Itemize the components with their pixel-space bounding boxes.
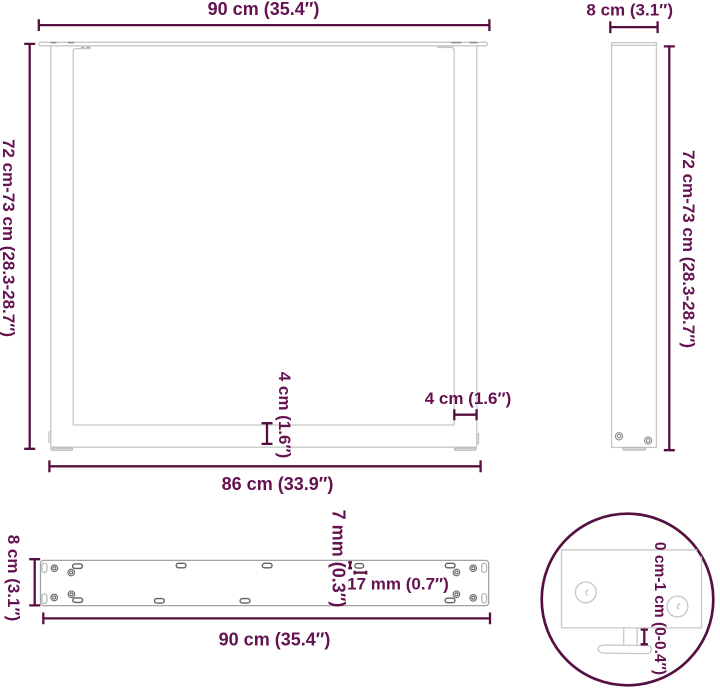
svg-text:8 cm (3.1″): 8 cm (3.1″) xyxy=(586,1,673,20)
svg-text:8 cm (3.1″): 8 cm (3.1″) xyxy=(4,535,23,622)
svg-text:72 cm-73 cm (28.3-28.7″): 72 cm-73 cm (28.3-28.7″) xyxy=(0,139,18,337)
svg-text:90 cm (35.4″): 90 cm (35.4″) xyxy=(208,0,320,19)
svg-text:4 cm (1.6″): 4 cm (1.6″) xyxy=(425,389,512,408)
svg-text:0 cm-1 cm (0-0.4″): 0 cm-1 cm (0-0.4″) xyxy=(651,542,668,675)
svg-text:86 cm (33.9″): 86 cm (33.9″) xyxy=(222,474,334,494)
svg-text:7 mm (0.3″): 7 mm (0.3″) xyxy=(329,510,349,608)
svg-text:4 cm (1.6″): 4 cm (1.6″) xyxy=(275,372,294,459)
svg-text:90 cm (35.4″): 90 cm (35.4″) xyxy=(219,630,331,650)
svg-text:17 mm (0.7″): 17 mm (0.7″) xyxy=(347,574,449,593)
svg-text:72 cm-73 cm (28.3-28.7″): 72 cm-73 cm (28.3-28.7″) xyxy=(679,150,698,348)
